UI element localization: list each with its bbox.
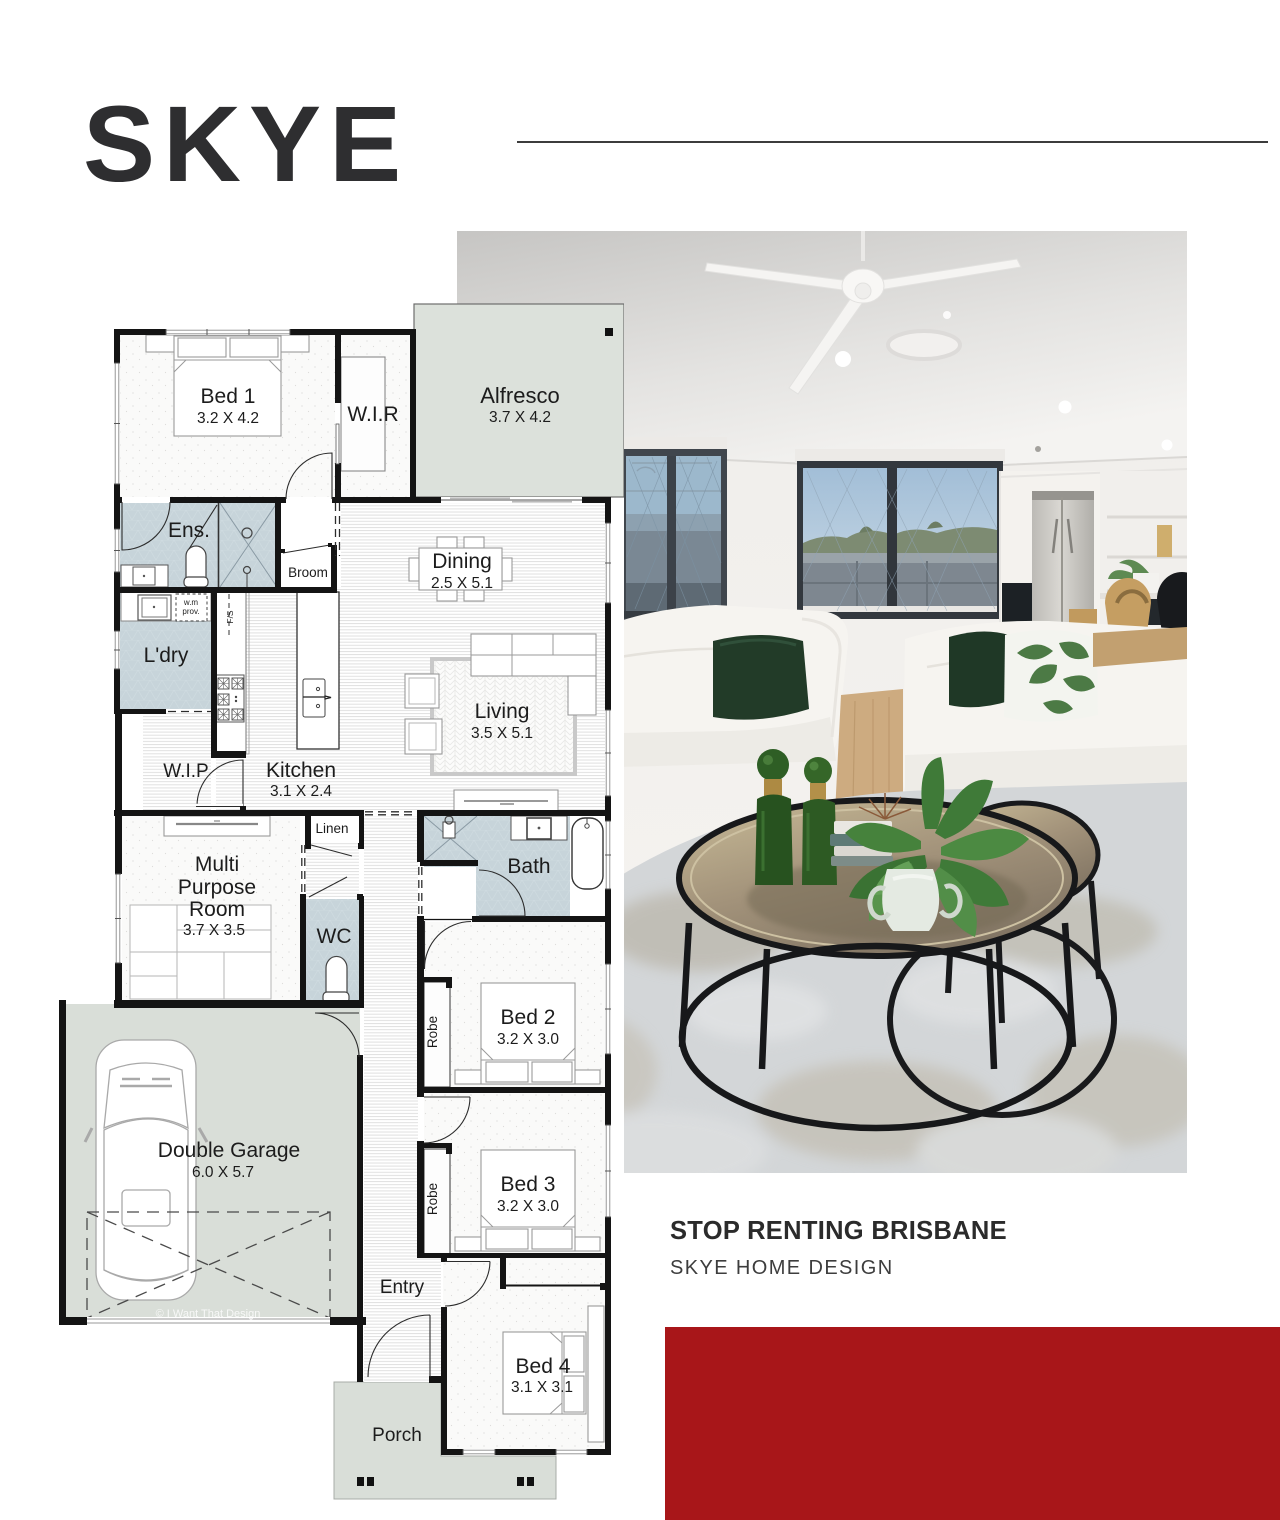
svg-text:Kitchen: Kitchen <box>266 759 336 782</box>
svg-text:3.7 X 3.5: 3.7 X 3.5 <box>183 922 245 939</box>
svg-text:3.2 X 3.0: 3.2 X 3.0 <box>497 1031 559 1048</box>
svg-text:3.7 X 4.2: 3.7 X 4.2 <box>489 409 551 426</box>
svg-text:L'dry: L'dry <box>144 644 189 667</box>
svg-text:Bed 3: Bed 3 <box>501 1173 556 1196</box>
svg-text:Bed 4: Bed 4 <box>516 1355 571 1378</box>
svg-text:© I Want That Design: © I Want That Design <box>156 1308 261 1320</box>
svg-text:WC: WC <box>317 925 352 948</box>
svg-text:W.I.R: W.I.R <box>347 403 398 426</box>
svg-text:Broom: Broom <box>288 565 328 580</box>
svg-text:Ens.: Ens. <box>168 519 210 542</box>
svg-text:2.5 X 5.1: 2.5 X 5.1 <box>431 575 493 592</box>
svg-text:3.5 X 5.1: 3.5 X 5.1 <box>471 725 533 742</box>
svg-text:Dining: Dining <box>432 550 492 573</box>
svg-text:Purpose: Purpose <box>178 876 256 899</box>
svg-text:Bed 1: Bed 1 <box>201 385 256 408</box>
svg-text:Double Garage: Double Garage <box>158 1139 300 1162</box>
svg-text:Robe: Robe <box>425 1183 440 1215</box>
svg-text:Porch: Porch <box>372 1425 422 1446</box>
svg-text:W.I.P: W.I.P <box>163 761 208 782</box>
svg-text:Bath: Bath <box>507 855 550 878</box>
svg-text:6.0 X 5.7: 6.0 X 5.7 <box>192 1164 254 1181</box>
svg-text:Alfresco: Alfresco <box>480 383 559 408</box>
svg-text:Room: Room <box>189 898 245 921</box>
svg-text:Bed 2: Bed 2 <box>501 1006 556 1029</box>
svg-text:Linen: Linen <box>315 821 348 836</box>
svg-text:Robe: Robe <box>425 1016 440 1048</box>
svg-text:3.1 X 2.4: 3.1 X 2.4 <box>270 783 332 800</box>
svg-text:prov.: prov. <box>182 607 199 616</box>
svg-text:3.2 X 3.0: 3.2 X 3.0 <box>497 1198 559 1215</box>
svg-text:w.m: w.m <box>183 598 199 607</box>
svg-text:3.1 X 3.1: 3.1 X 3.1 <box>511 1379 573 1396</box>
svg-text:3.2 X 4.2: 3.2 X 4.2 <box>197 410 259 427</box>
svg-text:Living: Living <box>475 700 530 723</box>
svg-text:F/S: F/S <box>225 610 235 624</box>
svg-text:Multi: Multi <box>195 853 239 876</box>
svg-text:Entry: Entry <box>380 1277 425 1298</box>
